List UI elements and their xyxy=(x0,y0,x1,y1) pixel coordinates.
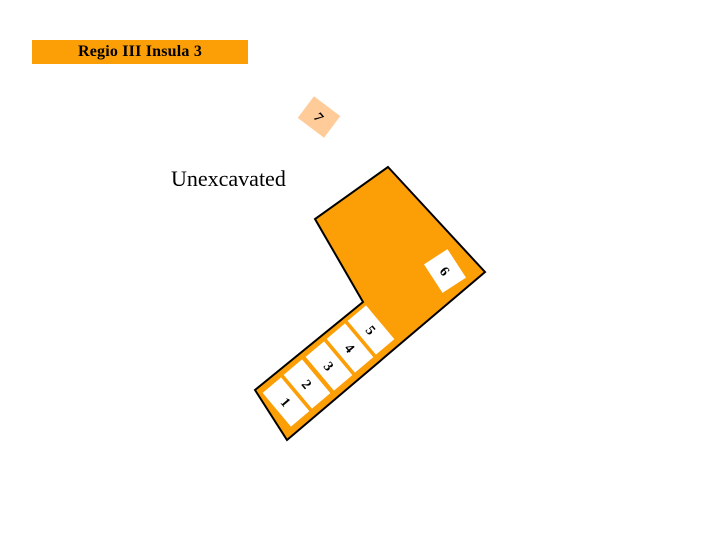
insula-map: 1 2 3 4 5 6 7 xyxy=(0,0,720,540)
page: Regio III Insula 3 Unexcavated 1 2 3 4 xyxy=(0,0,720,540)
entrance-7[interactable]: 7 xyxy=(298,96,341,137)
